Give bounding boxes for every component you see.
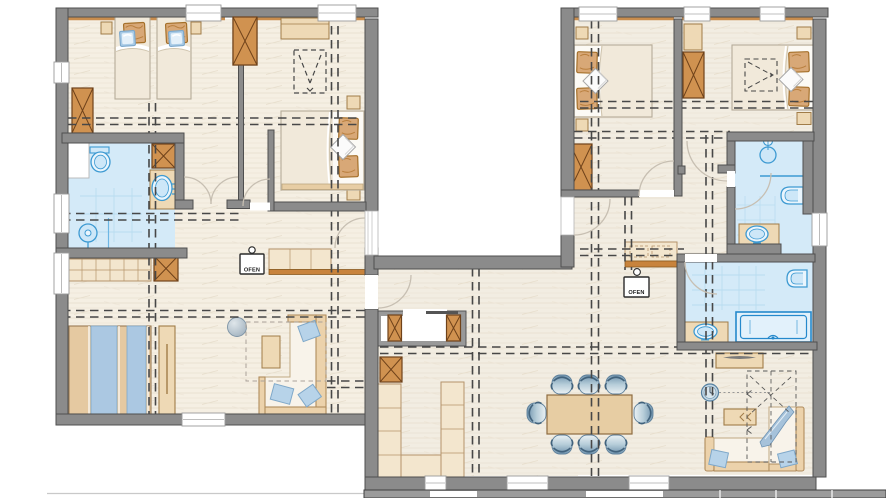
svg-text:OFEN: OFEN	[244, 268, 260, 274]
svg-text:OFEN: OFEN	[628, 290, 644, 296]
